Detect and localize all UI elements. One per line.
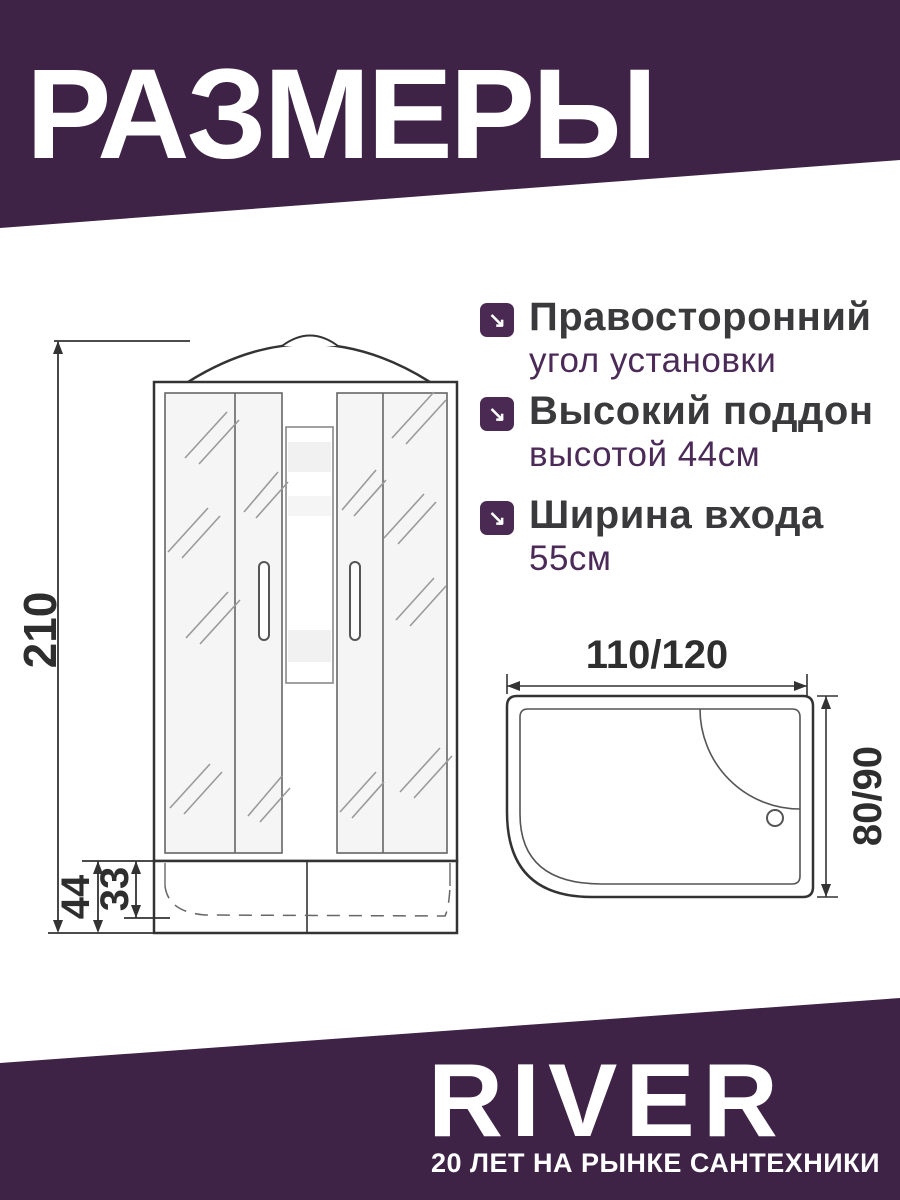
cabin-dome bbox=[188, 344, 430, 382]
brand-tagline: 20 ЛЕТ НА РЫНКЕ САНТЕХНИКИ bbox=[431, 1150, 880, 1177]
arrow-down-right-icon: ↘ bbox=[480, 303, 514, 337]
dimension-width bbox=[507, 674, 807, 696]
dimension-label-tray: 44 bbox=[54, 874, 98, 919]
feature-install-side: ↘ Правосторонний угол установки bbox=[480, 296, 872, 381]
feature-subtitle: угол установки bbox=[529, 341, 872, 381]
feature-title: Высокий поддон bbox=[529, 390, 873, 433]
arrow-down-right-icon: ↘ bbox=[480, 501, 514, 535]
feature-high-tray: ↘ Высокий поддон высотой 44см bbox=[480, 390, 873, 475]
dome-cap bbox=[282, 336, 338, 347]
dimension-label-width: 110/120 bbox=[586, 633, 728, 677]
dimension-label-height: 210 bbox=[20, 592, 66, 669]
feature-title: Ширина входа bbox=[529, 494, 824, 537]
feature-title: Правосторонний bbox=[529, 296, 872, 339]
dimension-label-basin: 33 bbox=[93, 867, 137, 912]
drain-circle bbox=[767, 810, 783, 826]
feature-subtitle: 55см bbox=[529, 539, 824, 579]
feature-entry-width: ↘ Ширина входа 55см bbox=[480, 494, 824, 579]
tray-front bbox=[154, 861, 457, 933]
arrow-down-right-icon: ↘ bbox=[480, 397, 514, 431]
center-column bbox=[286, 427, 333, 683]
feature-subtitle: высотой 44см bbox=[529, 435, 873, 475]
tray-outline-top bbox=[507, 696, 813, 897]
page-title: РАЗМЕРЫ bbox=[26, 51, 654, 179]
dimension-label-depth: 80/90 bbox=[846, 746, 890, 846]
front-view-diagram: 210 44 33 bbox=[20, 330, 470, 950]
door-handle-left bbox=[259, 562, 269, 640]
brand-logo: RIVER bbox=[428, 1049, 786, 1153]
dimension-depth bbox=[817, 696, 838, 897]
top-view-diagram: 110/120 80/90 bbox=[470, 620, 900, 920]
door-handle-right bbox=[350, 562, 360, 640]
infographic-canvas: РАЗМЕРЫ ↘ Правосторонний угол установки … bbox=[0, 0, 900, 1200]
